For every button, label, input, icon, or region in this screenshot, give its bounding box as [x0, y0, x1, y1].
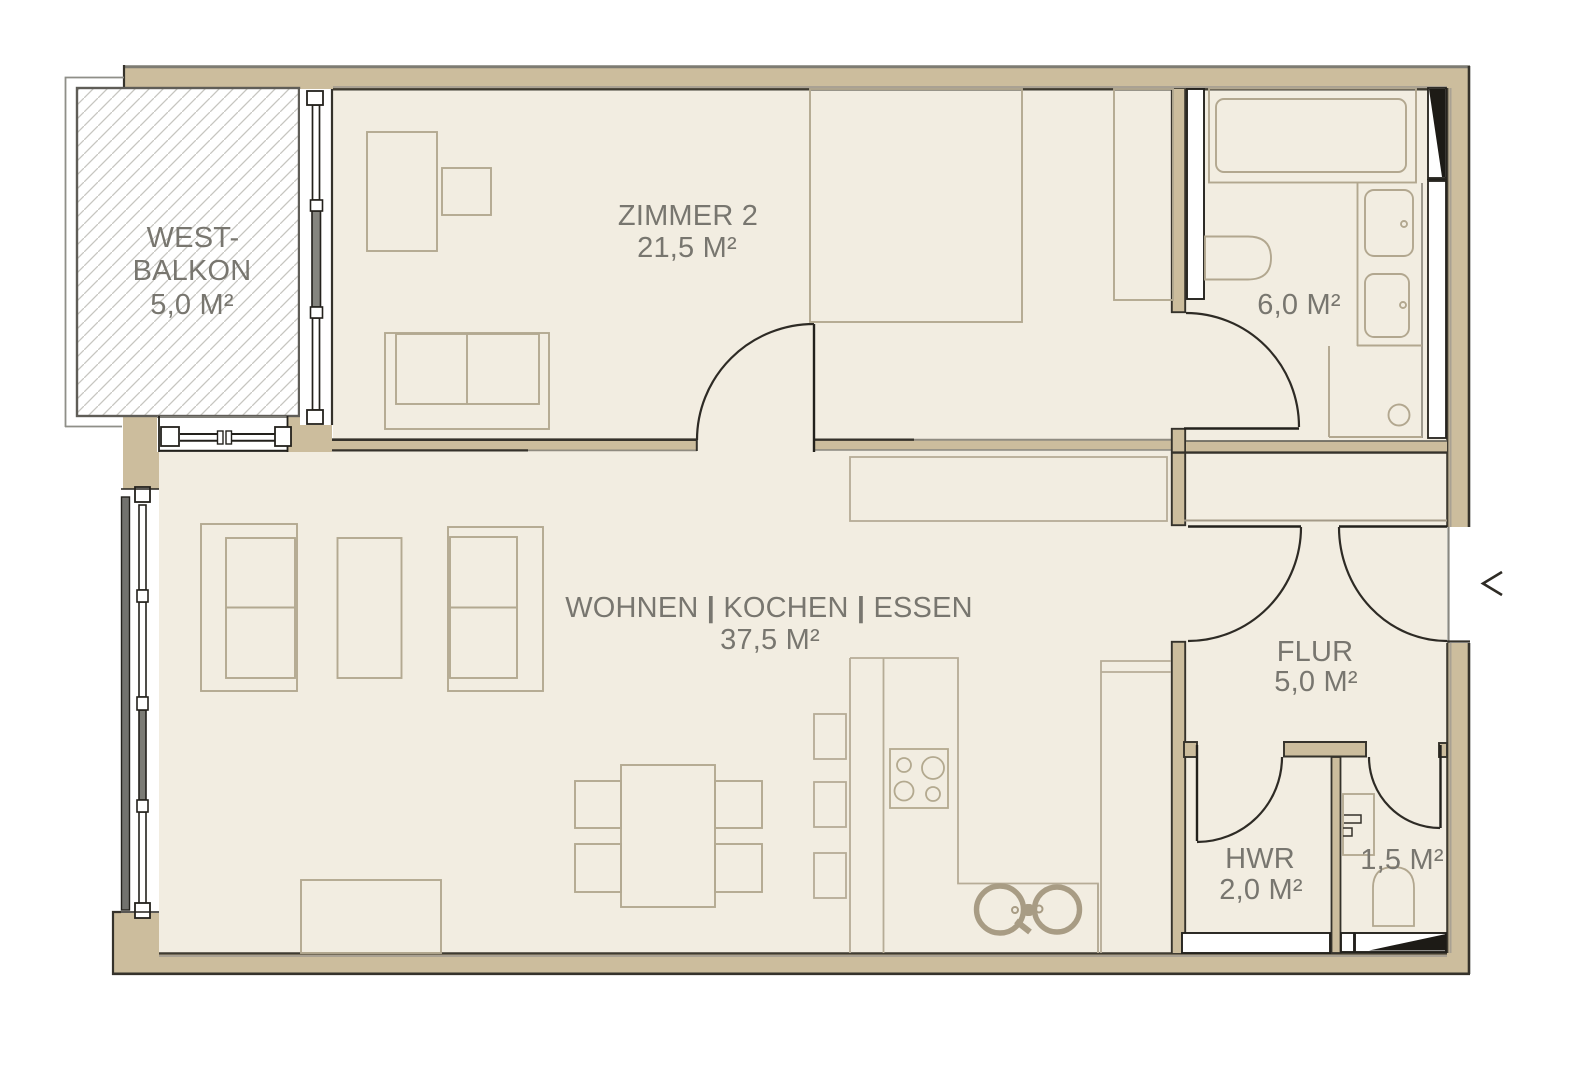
- svg-text:6,0 M²: 6,0 M²: [1257, 289, 1341, 321]
- svg-text:HWR: HWR: [1225, 843, 1295, 875]
- svg-text:21,5 M²: 21,5 M²: [637, 232, 737, 264]
- svg-text:2,0 M²: 2,0 M²: [1219, 874, 1303, 906]
- svg-text:1,5 M²: 1,5 M²: [1360, 844, 1444, 876]
- svg-text:WOHNEN | KOCHEN | ESSEN: WOHNEN | KOCHEN | ESSEN: [565, 592, 973, 624]
- svg-text:5,0 M²: 5,0 M²: [1274, 666, 1358, 698]
- svg-text:37,5 M²: 37,5 M²: [720, 624, 820, 656]
- svg-text:5,0 M²: 5,0 M²: [150, 289, 234, 321]
- svg-text:BALKON: BALKON: [133, 255, 252, 287]
- svg-text:ZIMMER 2: ZIMMER 2: [618, 200, 758, 232]
- svg-text:FLUR: FLUR: [1277, 636, 1354, 668]
- svg-text:WEST-: WEST-: [147, 222, 240, 254]
